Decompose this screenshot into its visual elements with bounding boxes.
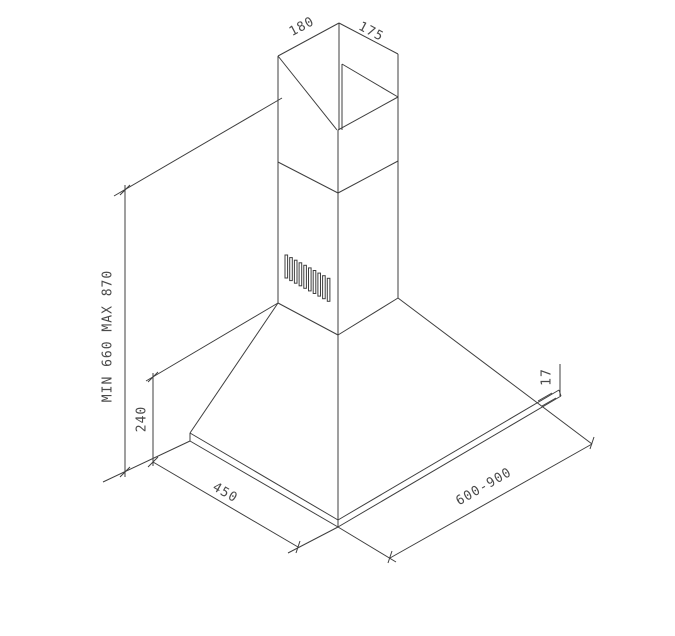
dimension-depth [153, 462, 338, 553]
vent-grille [285, 255, 330, 301]
chimney-body [278, 54, 398, 335]
grille-slat [299, 263, 302, 286]
chimney-bottom-right-edge [338, 298, 398, 335]
width-dim-line [390, 444, 592, 558]
grille-slat [323, 276, 326, 299]
depth-ext-line [288, 527, 338, 553]
grille-slat [313, 271, 316, 294]
canopy-left-ridge [190, 303, 278, 433]
grille-slat [294, 260, 297, 283]
chimney-seam-right [338, 161, 398, 193]
depth-dim-line [153, 462, 298, 547]
rim-tick-top [538, 393, 552, 401]
dim-label-canopy-height: 240 [135, 406, 150, 432]
duct-inner-right-bottom-edge [338, 97, 398, 130]
base-bottom-right-edge [338, 396, 561, 527]
canopy-height-ext-line [146, 303, 278, 381]
grille-slat [285, 255, 288, 278]
duct-inner-right-top-edge [342, 64, 398, 97]
base-bottom-left-edge [190, 441, 338, 527]
base-rim [190, 390, 561, 527]
dimension-canopy-height [146, 303, 278, 467]
chimney-bottom-left-edge [278, 303, 338, 335]
dim-label-height-range: MIN 660 MAX 870 [101, 270, 116, 402]
grille-slat [304, 265, 307, 288]
dim-label-rim-thickness: 17 [540, 368, 555, 386]
duct-front-left-edge [278, 56, 337, 130]
height-ext-line-top [114, 98, 282, 196]
technical-drawing-canvas: 180 175 MIN 660 MAX 870 240 450 600-900 … [0, 0, 675, 636]
width-ext-line-left [338, 527, 396, 562]
base-top-right-edge [338, 390, 559, 520]
grille-slat [318, 273, 321, 296]
chimney-seam-left [278, 162, 338, 193]
grille-slat [309, 268, 312, 291]
base-top-left-edge [190, 433, 338, 520]
grille-slat [290, 258, 293, 281]
canopy-right-ridge [398, 298, 592, 444]
dimension-height-range [103, 98, 282, 482]
grille-slat [327, 278, 330, 301]
canopy [190, 298, 592, 520]
